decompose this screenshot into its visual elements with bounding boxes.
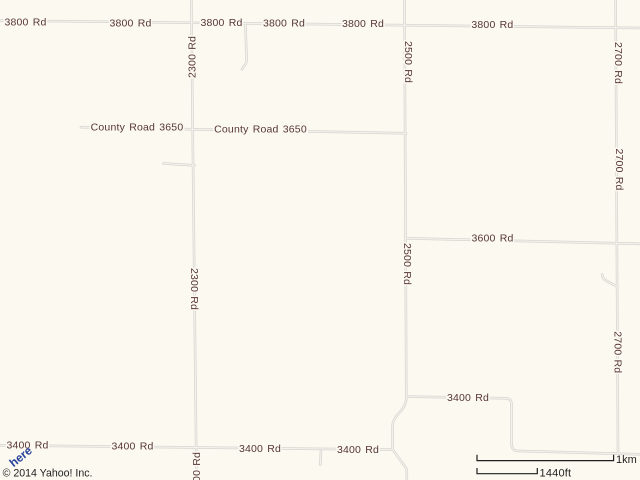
svg-text:2700 Rd: 2700 Rd [613,148,625,190]
svg-text:3800 Rd: 3800 Rd [200,17,242,29]
svg-text:3800 Rd: 3800 Rd [342,18,384,30]
svg-text:3800 Rd: 3800 Rd [263,17,305,29]
svg-text:3800 Rd: 3800 Rd [4,16,46,28]
svg-text:1440ft: 1440ft [540,467,572,479]
svg-text:County Road 3650: County Road 3650 [214,123,307,135]
svg-text:2700 Rd: 2700 Rd [612,331,624,373]
svg-text:© 2014 Yahoo! Inc.: © 2014 Yahoo! Inc. [3,468,93,480]
svg-text:3400 Rd: 3400 Rd [111,440,153,452]
svg-text:1km: 1km [616,454,637,466]
svg-text:3400 Rd: 3400 Rd [337,444,379,456]
svg-text:2300 Rd: 2300 Rd [187,36,199,78]
svg-text:2300 Rd: 2300 Rd [191,452,203,480]
svg-text:3400 Rd: 3400 Rd [239,443,281,455]
svg-text:3600 Rd: 3600 Rd [471,233,513,245]
svg-text:2500 Rd: 2500 Rd [402,41,414,83]
svg-text:2500 Rd: 2500 Rd [401,243,413,285]
svg-text:County Road 3650: County Road 3650 [91,122,184,134]
svg-text:2700 Rd: 2700 Rd [612,42,624,84]
svg-text:3800 Rd: 3800 Rd [471,19,513,31]
svg-text:3400 Rd: 3400 Rd [447,392,489,404]
svg-text:2300 Rd: 2300 Rd [188,268,200,310]
svg-text:3800 Rd: 3800 Rd [109,17,151,29]
